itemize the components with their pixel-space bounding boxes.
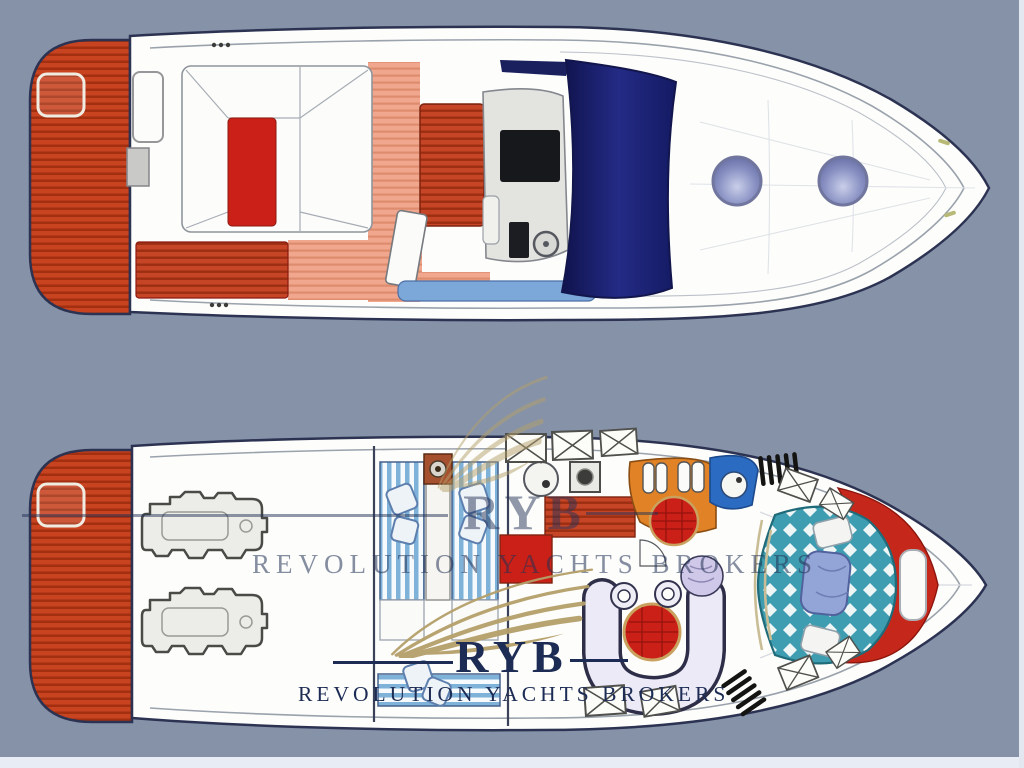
wet-bar <box>420 104 484 226</box>
transom-door <box>133 72 163 142</box>
lower-deck-plan <box>30 428 986 730</box>
porthole-port <box>713 157 761 205</box>
sunpad-red-cushion <box>228 118 276 226</box>
cockpit-sunpad <box>182 66 372 232</box>
cleat-forward <box>212 43 230 47</box>
cleat-aft <box>210 303 228 307</box>
dinette-pouf <box>681 556 723 596</box>
bed-pillow <box>800 550 852 616</box>
yacht-deck-plans: RYB REVOLUTION YACHTS BROKERS RYB REVOLU… <box>0 0 1024 768</box>
helm-screen <box>500 130 560 182</box>
windshield <box>562 60 676 298</box>
galley-cabinet <box>500 535 552 583</box>
platform-hatch <box>38 74 84 116</box>
main-deck-plan <box>30 27 989 320</box>
deck-plan-drawing <box>0 0 1024 768</box>
head <box>710 456 758 509</box>
transom-locker <box>127 148 149 186</box>
porthole-starboard <box>819 157 867 205</box>
toilet <box>721 472 747 498</box>
nightstand <box>426 472 450 600</box>
helm-console <box>483 89 568 262</box>
galley-sink <box>524 462 558 496</box>
platform-hatch-lower <box>38 484 84 526</box>
aft-bench <box>136 242 288 298</box>
galley-counter <box>545 497 635 537</box>
bow-hatch <box>900 550 926 620</box>
